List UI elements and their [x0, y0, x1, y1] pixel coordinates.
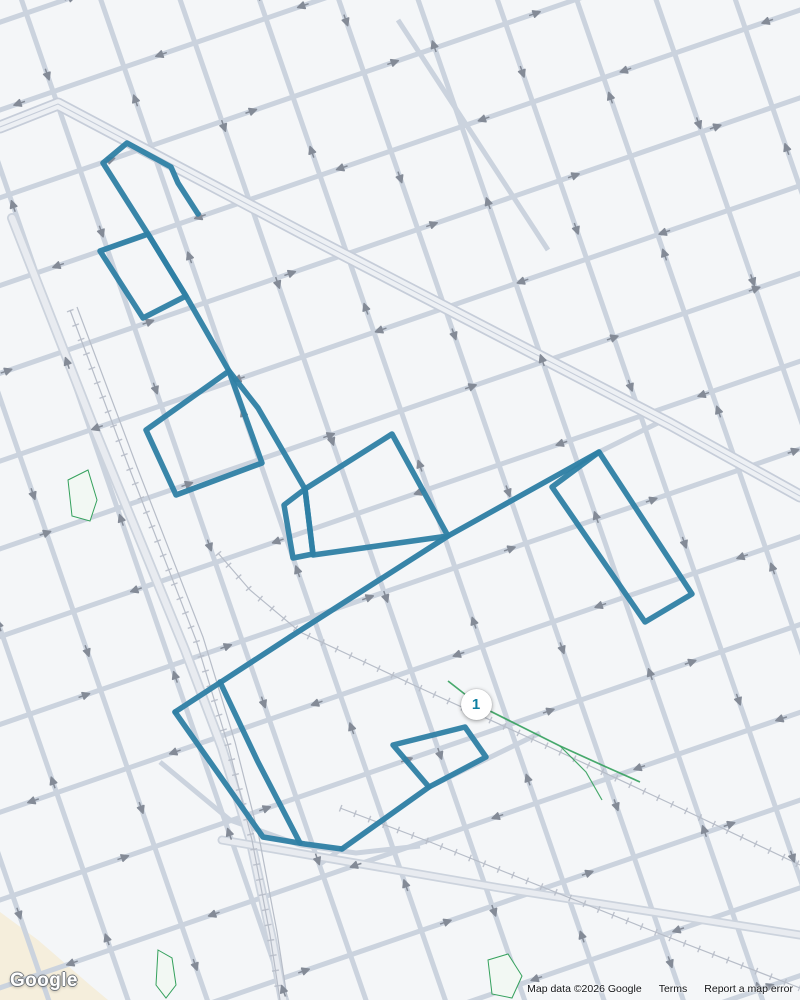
railway-lines	[70, 307, 800, 1000]
route-marker[interactable]: 1	[461, 689, 492, 720]
map-data-text: Map data ©2026 Google	[527, 983, 642, 995]
map-layers	[0, 0, 800, 1000]
report-error-link[interactable]: Report a map error	[704, 983, 793, 995]
map-attribution: Map data ©2026 Google Terms Report a map…	[527, 983, 793, 995]
map-canvas[interactable]: 1 Google Map data ©2026 Google Terms Rep…	[0, 0, 800, 1000]
route-marker-label: 1	[472, 696, 480, 713]
google-logo[interactable]: Google	[10, 970, 78, 992]
terms-link[interactable]: Terms	[659, 983, 688, 995]
